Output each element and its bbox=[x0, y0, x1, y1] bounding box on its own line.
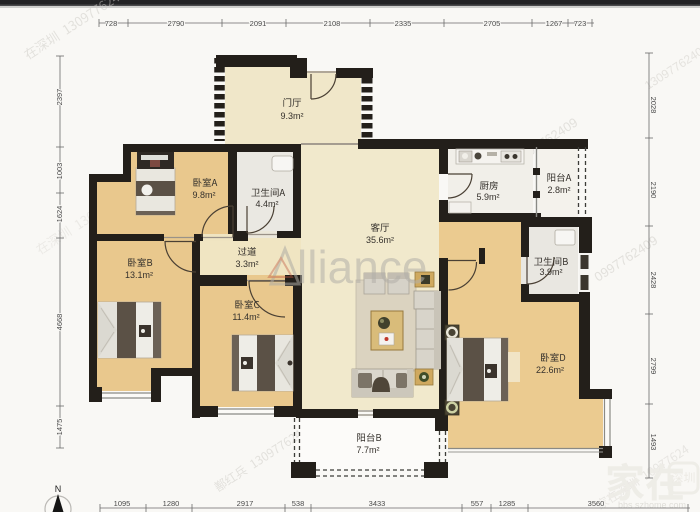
svg-text:557: 557 bbox=[471, 499, 484, 508]
svg-text:lliance: lliance bbox=[297, 241, 427, 293]
svg-text:2917: 2917 bbox=[237, 499, 254, 508]
svg-text:35.6m²: 35.6m² bbox=[366, 235, 394, 245]
svg-text:723: 723 bbox=[574, 19, 587, 28]
svg-text:2705: 2705 bbox=[484, 19, 501, 28]
svg-text:2428: 2428 bbox=[649, 272, 658, 289]
svg-text:9.8m²: 9.8m² bbox=[192, 190, 215, 200]
svg-text:3560: 3560 bbox=[588, 499, 605, 508]
svg-text:1493: 1493 bbox=[649, 434, 658, 451]
svg-text:1285: 1285 bbox=[499, 499, 516, 508]
svg-text:3433: 3433 bbox=[369, 499, 386, 508]
svg-text:1003: 1003 bbox=[55, 163, 64, 180]
svg-text:2335: 2335 bbox=[395, 19, 412, 28]
svg-text:2799: 2799 bbox=[649, 358, 658, 375]
svg-text:2790: 2790 bbox=[168, 19, 185, 28]
svg-text:5.9m²: 5.9m² bbox=[476, 192, 499, 202]
svg-text:538: 538 bbox=[292, 499, 305, 508]
svg-text:4.4m²: 4.4m² bbox=[255, 199, 278, 209]
svg-text:13.1m²: 13.1m² bbox=[125, 270, 153, 280]
svg-text:2.8m²: 2.8m² bbox=[547, 185, 570, 195]
svg-text:2091: 2091 bbox=[250, 19, 267, 28]
svg-text:3.9m²: 3.9m² bbox=[539, 267, 562, 277]
svg-text:9.3m²: 9.3m² bbox=[280, 111, 303, 121]
svg-text:1267: 1267 bbox=[546, 19, 563, 28]
svg-text:728: 728 bbox=[105, 19, 118, 28]
svg-text:2397: 2397 bbox=[55, 89, 64, 106]
svg-text:4668: 4668 bbox=[55, 314, 64, 331]
svg-text:7.7m²: 7.7m² bbox=[356, 445, 379, 455]
svg-text:1624: 1624 bbox=[55, 206, 64, 223]
svg-text:13097762409: 13097762409 bbox=[642, 41, 700, 93]
svg-text:22.6m²: 22.6m² bbox=[536, 365, 564, 375]
svg-text:1475: 1475 bbox=[55, 419, 64, 436]
svg-text:3.3m²: 3.3m² bbox=[235, 259, 258, 269]
svg-text:2028: 2028 bbox=[649, 97, 658, 114]
svg-text:1280: 1280 bbox=[163, 499, 180, 508]
svg-text:1095: 1095 bbox=[114, 499, 131, 508]
svg-text:2108: 2108 bbox=[324, 19, 341, 28]
svg-text:2190: 2190 bbox=[649, 182, 658, 199]
svg-text:bbs szhome com: bbs szhome com bbox=[618, 500, 686, 510]
svg-text:N: N bbox=[55, 484, 62, 494]
svg-text:11.4m²: 11.4m² bbox=[232, 312, 259, 322]
